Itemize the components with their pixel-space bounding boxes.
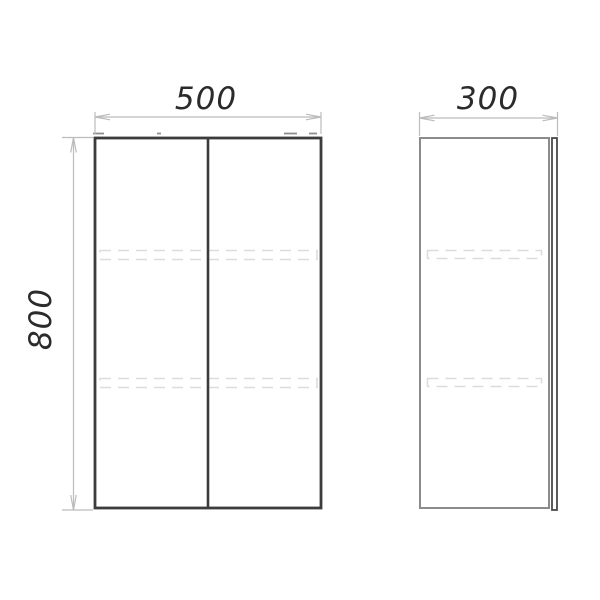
- technical-drawing: 500 300 800: [0, 0, 600, 600]
- drawing-canvas: 500 300 800: [0, 0, 600, 600]
- dimension-depth-label: 300: [457, 81, 519, 117]
- dimension-height-label: 800: [23, 288, 59, 350]
- side-door-panel-edge: [552, 138, 557, 510]
- dimension-width-label: 500: [175, 81, 237, 117]
